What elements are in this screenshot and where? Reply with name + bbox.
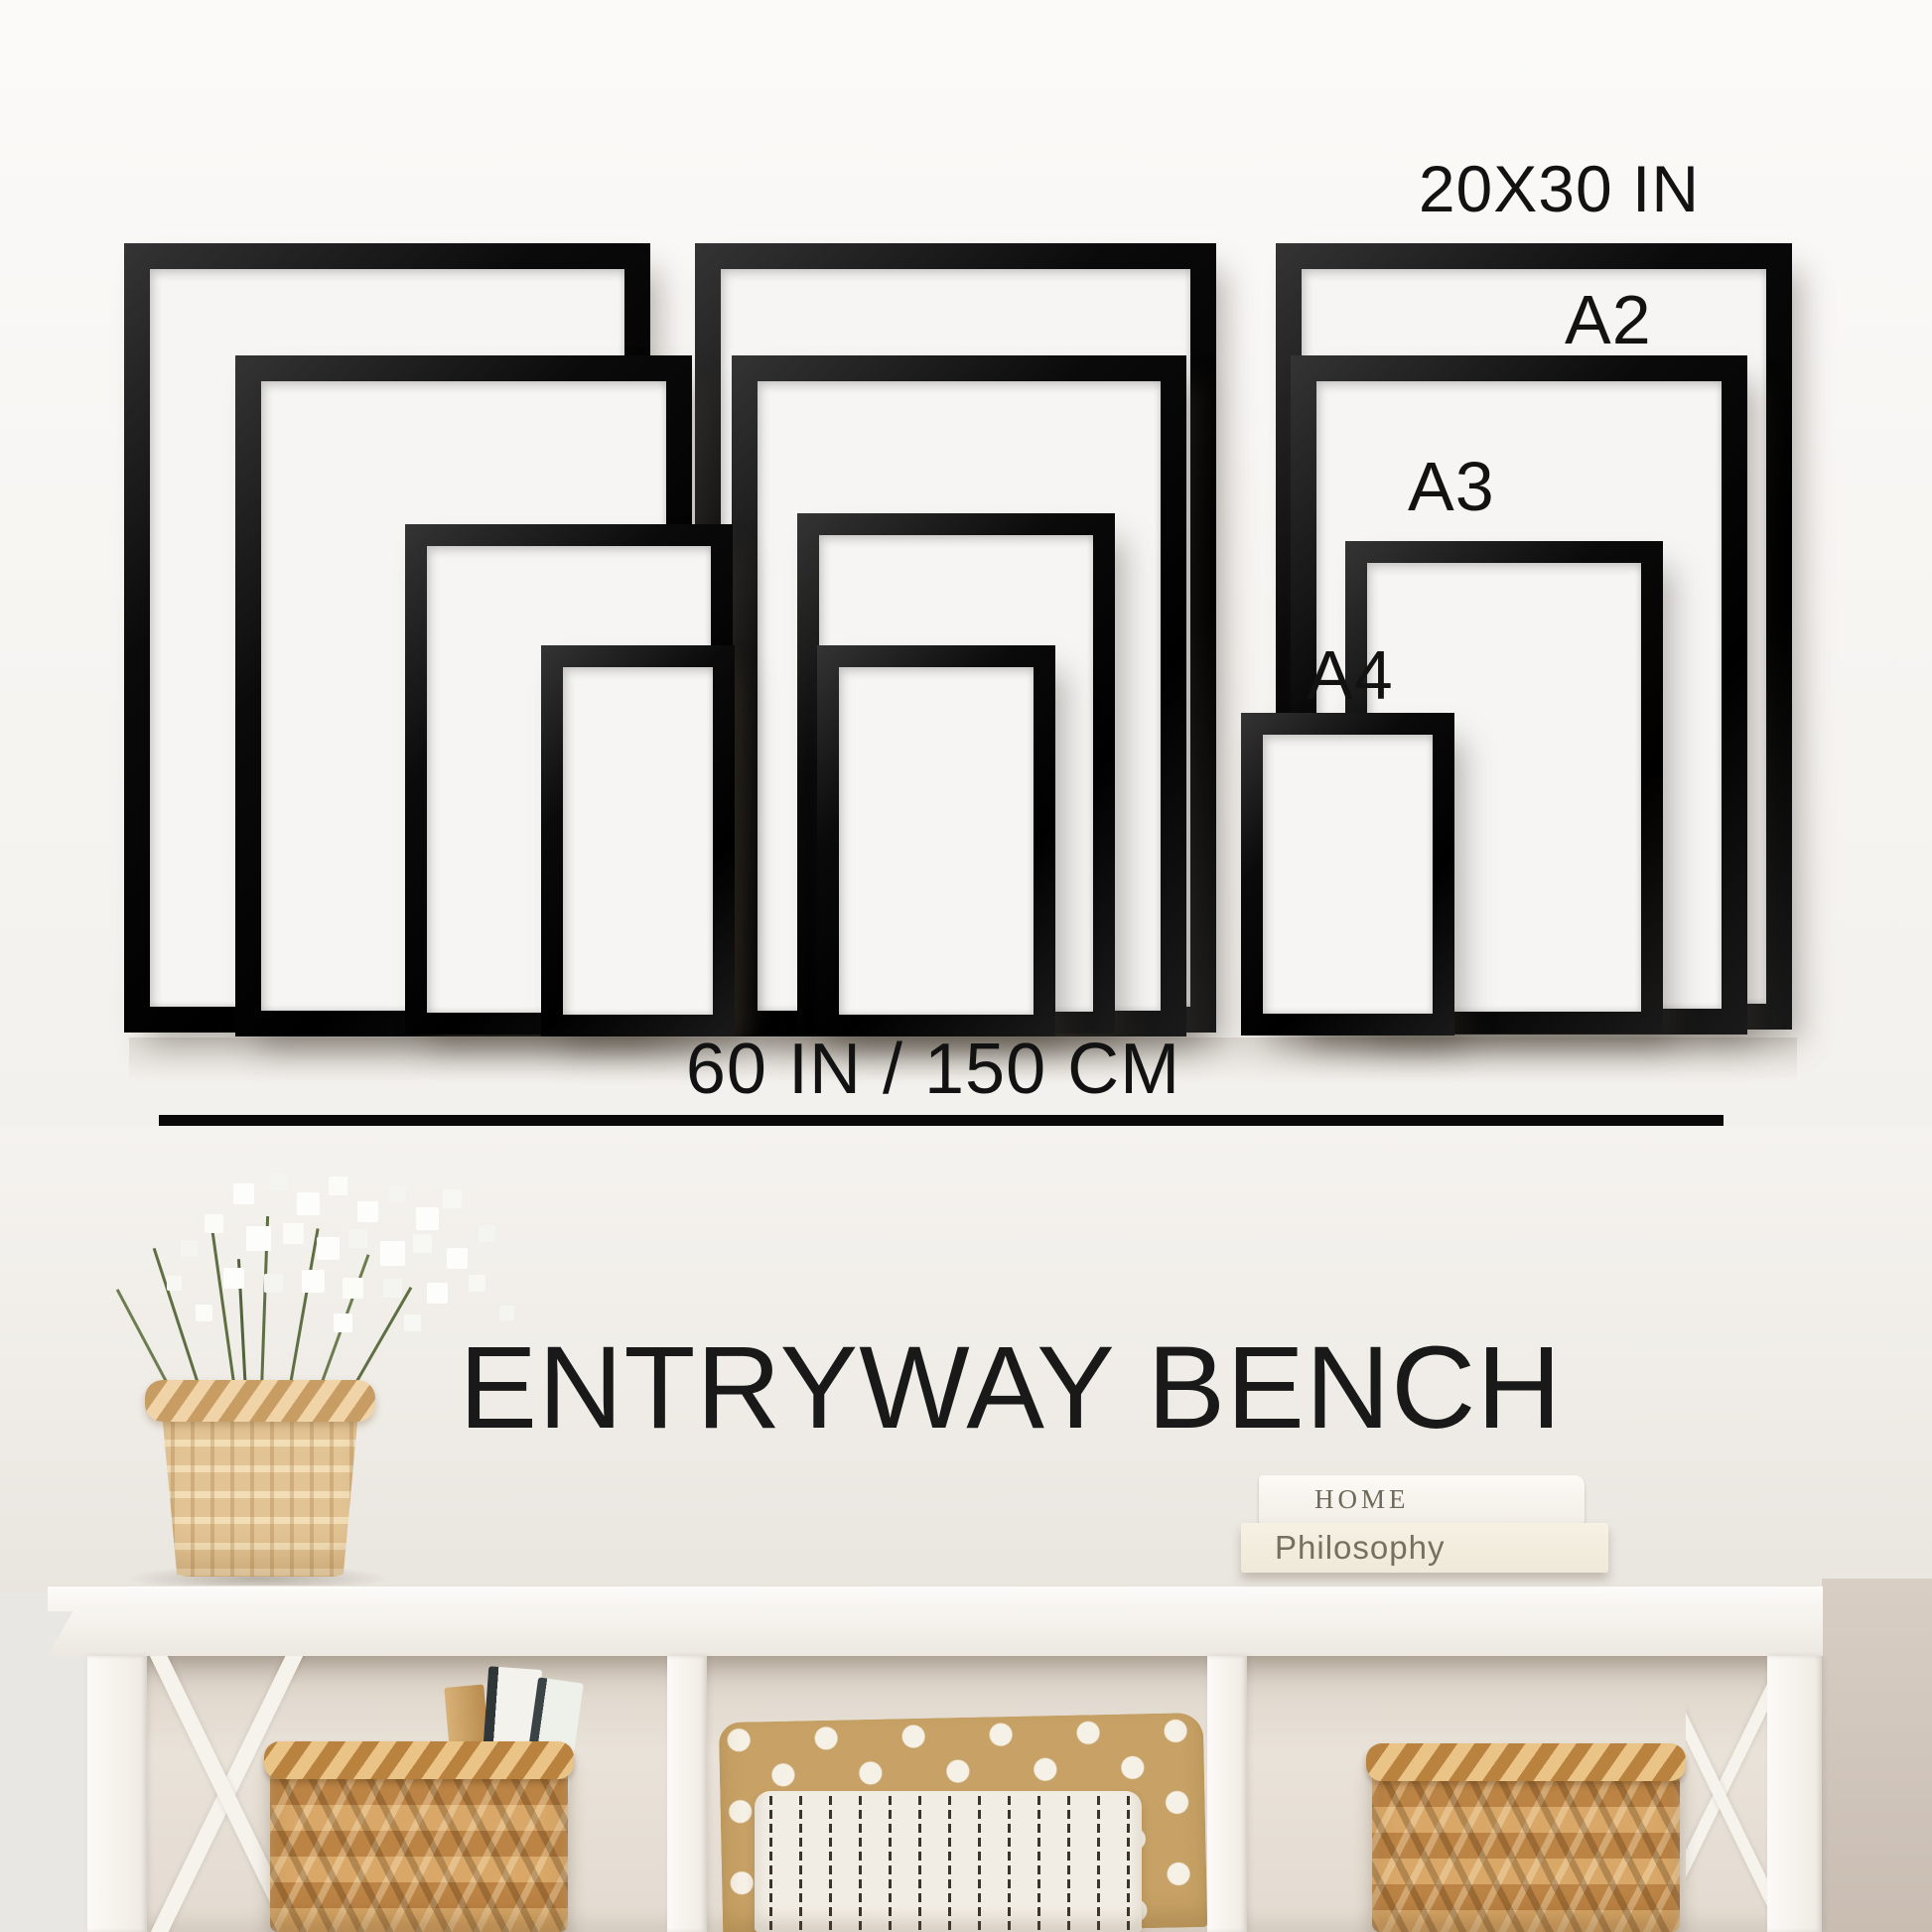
size-label-20x30: 20X30 IN (1370, 151, 1700, 226)
total-width-label: 60 IN / 150 CM (655, 1029, 1211, 1110)
frame-a4-left (541, 645, 735, 1036)
bench-divider-right (1207, 1656, 1247, 1932)
wicker-basket-right (1372, 1755, 1680, 1932)
bench-x-brace-right (1686, 1656, 1767, 1932)
x-brace-bar (1686, 1656, 1767, 1932)
product-size-guide-image: 20X30 IN A2 A3 A4 60 IN / 150 CM ENTRYWA… (0, 0, 1932, 1932)
size-label-a2: A2 (1565, 280, 1652, 359)
size-label-a3: A3 (1408, 447, 1495, 526)
frame-mat (839, 667, 1034, 1015)
bench-leg-left (87, 1656, 147, 1932)
babys-breath-flowers (94, 1164, 95, 1165)
bench-divider-left (667, 1656, 707, 1932)
measurement-line (159, 1115, 1724, 1126)
book-philosophy-title: Philosophy (1241, 1529, 1445, 1567)
wall-shadow-right (1822, 1579, 1932, 1932)
striped-pillow (755, 1791, 1142, 1932)
frame-a4-middle (817, 645, 1055, 1036)
bench-leg-right (1767, 1656, 1822, 1932)
book-home-title: HOME (1259, 1484, 1410, 1515)
book-philosophy: Philosophy (1241, 1523, 1608, 1573)
size-label-a4: A4 (1307, 635, 1394, 715)
book-home: HOME (1259, 1475, 1585, 1523)
bench-top-surface (48, 1586, 1823, 1611)
frame-mat (563, 667, 713, 1015)
frame-a4-right (1241, 713, 1454, 1035)
frame-mat (1263, 735, 1433, 1014)
wicker-basket-left (270, 1753, 568, 1932)
page-title: ENTRYWAY BENCH (459, 1320, 1562, 1455)
wicker-plant-pot-rim (145, 1380, 375, 1422)
bench-top-edge (48, 1610, 1823, 1656)
